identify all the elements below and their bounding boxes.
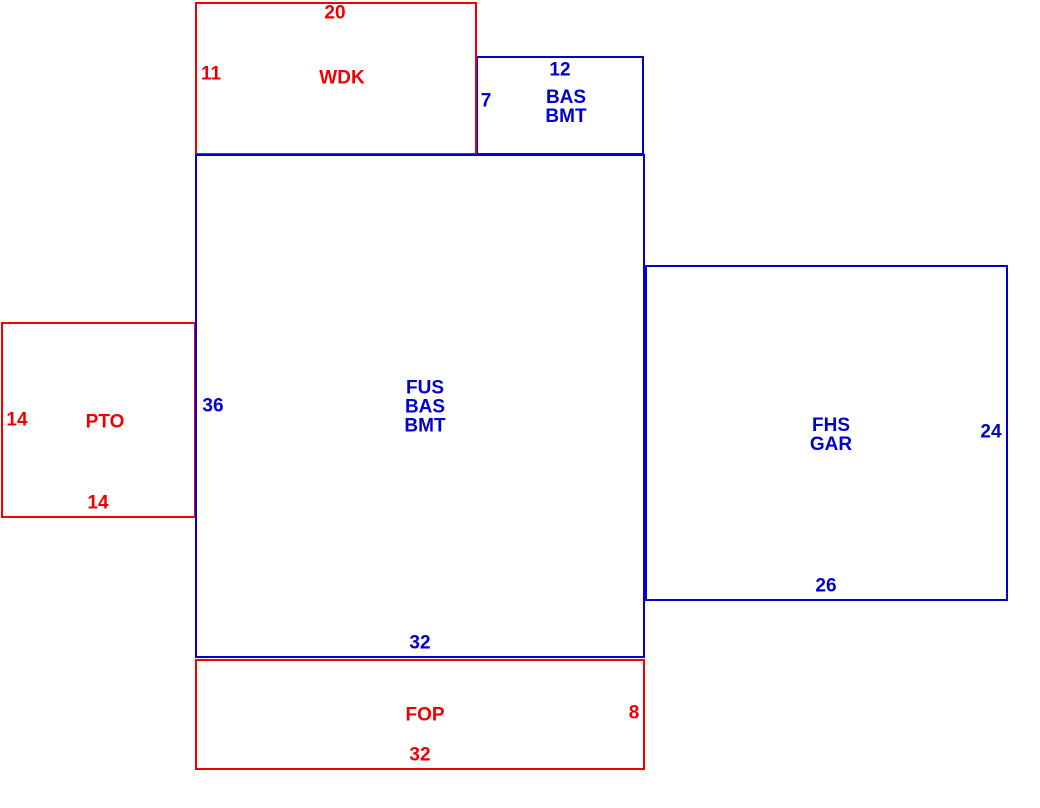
room-label-fhs-gar: FHSGAR — [810, 416, 852, 454]
room-label-pto: PTO — [86, 413, 125, 432]
dimension-bas-bmt-upper-left: 7 — [481, 92, 492, 111]
room-label-line: BMT — [404, 417, 445, 436]
dimension-pto-left: 14 — [6, 411, 27, 430]
dimension-wdk-top: 20 — [324, 4, 345, 23]
room-label-line: BAS — [545, 88, 586, 107]
dimension-fop-right: 8 — [629, 704, 640, 723]
room-label-line: GAR — [810, 435, 852, 454]
floorplan-sketch: BASBMTWDKPTOFOPFHSGARFUSBASBMT2011127363… — [0, 0, 1040, 808]
room-label-line: FOP — [405, 706, 444, 725]
room-label-line: FUS — [404, 379, 445, 398]
room-label-line: PTO — [86, 413, 125, 432]
room-label-fop: FOP — [405, 706, 444, 725]
dimension-pto-bottom: 14 — [87, 494, 108, 513]
room-label-line: BAS — [404, 398, 445, 417]
dimension-fus-bas-bmt-bottom: 32 — [409, 634, 430, 653]
room-label-fus-bas-bmt: FUSBASBMT — [404, 379, 445, 436]
dimension-fus-bas-bmt-left: 36 — [202, 397, 223, 416]
room-label-line: BMT — [545, 107, 586, 126]
dimension-fop-bottom: 32 — [409, 746, 430, 765]
room-label-wdk: WDK — [319, 69, 364, 88]
dimension-wdk-left: 11 — [201, 65, 221, 84]
dimension-fhs-gar-bottom: 26 — [815, 577, 836, 596]
dimension-fhs-gar-right: 24 — [980, 423, 1001, 442]
room-label-line: FHS — [810, 416, 852, 435]
room-label-line: WDK — [319, 69, 364, 88]
dimension-bas-bmt-upper-top: 12 — [549, 61, 570, 80]
room-label-bas-bmt-upper: BASBMT — [545, 88, 586, 126]
